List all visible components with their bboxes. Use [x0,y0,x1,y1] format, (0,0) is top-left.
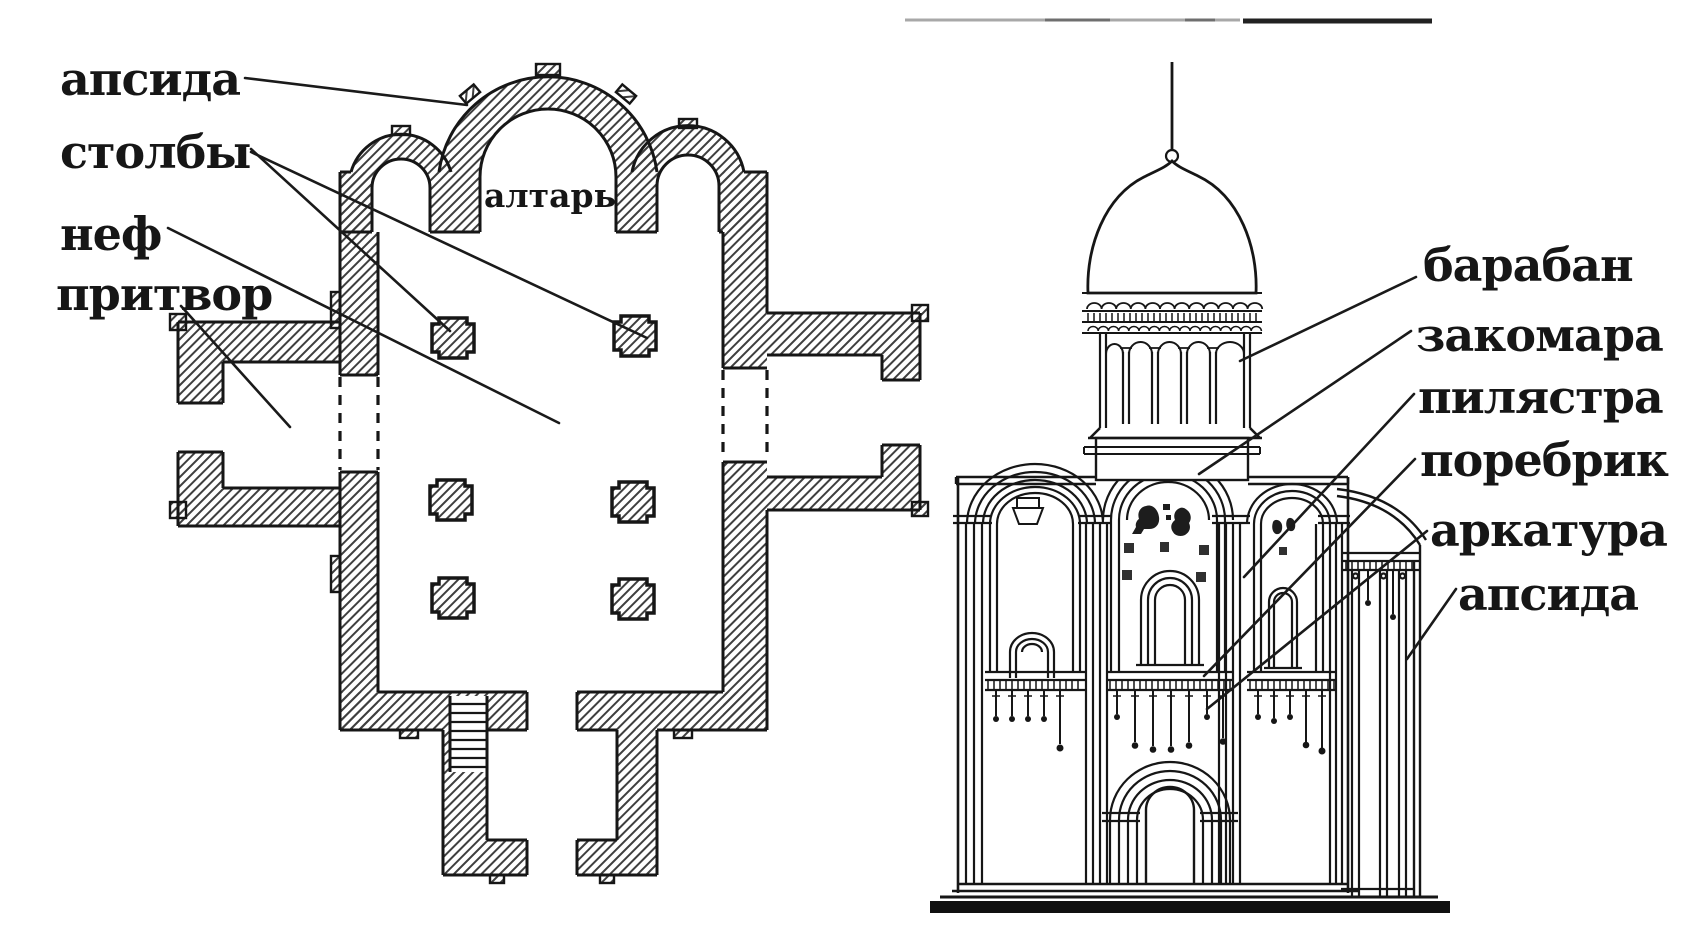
plan-label-nave: неф [60,207,161,261]
elevation-label-apse: апсида [1458,567,1638,621]
drum-pedestal [1084,438,1260,480]
central-bay [1122,504,1209,665]
dome [1082,62,1262,333]
elevation-label-porebrik: поребрик [1420,433,1669,487]
apse-volume [1337,489,1426,896]
plan-label-pillars: столбы [60,125,250,179]
plan-label-apse: апсида [60,52,240,106]
leader-drum [1240,277,1416,361]
drum [1088,333,1262,438]
elevation-labels: барабан закомара пилястра поребрик аркат… [1416,238,1669,621]
elevation-label-pilaster: пилястра [1418,370,1663,424]
elevation-drawing [930,62,1450,907]
diagram-canvas: апсида столбы неф притвор алтарь барабан… [0,0,1698,938]
scan-border-artifact [905,20,1432,21]
left-bay [1010,498,1054,678]
arcature-pendants [992,690,1326,755]
elevation-label-zakomara: закомара [1416,308,1663,362]
ground [930,884,1450,907]
plan-label-altar: алтарь [484,176,616,215]
leader-zakomara [1199,331,1411,474]
leader-apse-plan [245,78,467,105]
portal [1102,762,1238,884]
elevation-label-drum: барабан [1423,238,1633,292]
elevation-label-arcature: аркатура [1430,503,1667,557]
diagram-page: апсида столбы неф притвор алтарь барабан… [0,0,1698,938]
porebrik-band [985,672,1337,690]
pilaster-strips [958,477,1348,893]
plan-label-narthex: притвор [56,267,272,321]
